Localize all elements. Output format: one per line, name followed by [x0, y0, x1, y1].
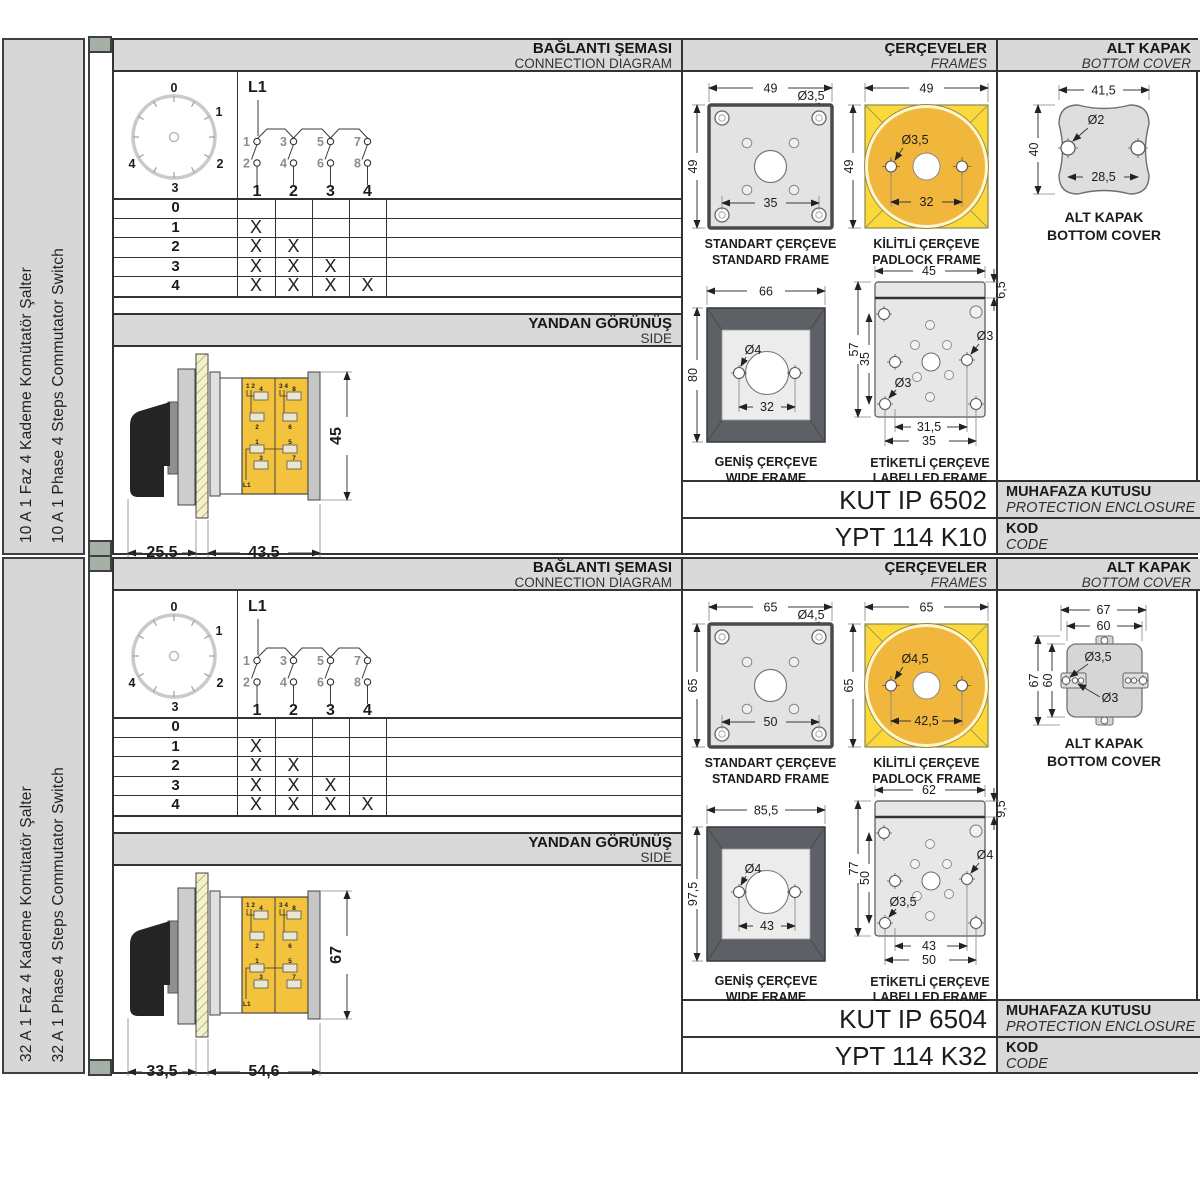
pole-1: 1 — [253, 183, 262, 200]
table-mark: X — [312, 795, 349, 814]
dial-pos-0: 0 — [171, 600, 178, 614]
dim-side-height: 45 — [328, 427, 345, 445]
code-label-en: CODE — [1006, 537, 1200, 553]
l1-feed-label: L1 — [248, 79, 267, 96]
code-label-en: CODE — [1006, 1056, 1200, 1072]
switch-dial-drawing: 0 1 2 3 4 — [114, 72, 237, 198]
dim-pad-hole: Ø4,5 — [901, 652, 928, 666]
product-code-label: KOD CODE — [998, 1038, 1200, 1072]
table-mark: X — [275, 257, 312, 276]
header-cover: ALT KAPAK BOTTOM COVER — [996, 559, 1200, 591]
table-row-label: 4 — [114, 795, 237, 815]
labelled-frame-drawing: 62 — [845, 784, 1023, 1004]
cover-title-en: BOTTOM COVER — [1047, 753, 1161, 769]
standard-frame-title-tr: STANDART ÇERÇEVE — [705, 237, 837, 251]
header-cover-en: BOTTOM COVER — [996, 57, 1191, 71]
side-view-drawing: 1 2 3 4 4 2 1 3 8 6 5 7 L1 45 25,5 43,5 — [114, 347, 674, 557]
table-row-label: 1 — [114, 218, 237, 238]
dim-std-height: 49 — [686, 160, 700, 174]
dial-pos-2: 2 — [217, 676, 224, 690]
header-frames-en: FRAMES — [681, 57, 987, 71]
dim-cover-hole: Ø2 — [1088, 113, 1105, 127]
table-row-label: 0 — [114, 198, 237, 218]
switch-dial-drawing: 0 1 2 3 4 — [114, 591, 237, 717]
dial-pos-4: 4 — [129, 157, 136, 171]
dim-cover-hole-small: Ø3 — [1102, 691, 1119, 705]
dim-wide-hole: Ø4 — [745, 343, 762, 357]
dim-lbl-bottom-inner: 43 — [922, 939, 936, 953]
bottom-cover-drawing: 67 60 67 60 — [1010, 601, 1200, 781]
dim-std-hole: Ø3,5 — [797, 89, 824, 103]
table-mark: X — [275, 776, 312, 795]
terminal-6: 6 — [288, 424, 292, 431]
header-connection-en: CONNECTION DIAGRAM — [114, 576, 672, 590]
wide-frame-drawing: 66 80 Ø4 32 GENİŞ ÇERÇEVE — [692, 278, 852, 490]
dim-std-inner: 35 — [764, 196, 778, 210]
header-connection: BAĞLANTI ŞEMASI CONNECTION DIAGRAM — [114, 559, 681, 591]
table-mark: X — [275, 276, 312, 295]
header-frames-tr: ÇERÇEVELER — [681, 41, 987, 57]
wide-frame-drawing: 85,5 97,5 Ø4 43 GENİŞ ÇERÇEV — [692, 797, 852, 1009]
table-row-label: 2 — [114, 756, 237, 776]
dim-wide-inner: 43 — [760, 919, 774, 933]
labelled-frame-drawing: 45 — [845, 265, 1023, 485]
dim-wide-inner: 32 — [760, 400, 774, 414]
standard-frame-title-en: STANDARD FRAME — [712, 253, 829, 267]
dial-pos-4: 4 — [129, 676, 136, 690]
code-label-tr: KOD — [1006, 1040, 1200, 1056]
dial-pos-1: 1 — [216, 105, 223, 119]
table-row-label: 4 — [114, 276, 237, 296]
contact-2: 2 — [243, 676, 250, 690]
code-label-tr: KOD — [1006, 521, 1200, 537]
switch-knob — [130, 921, 170, 1016]
dim-std-width: 49 — [764, 82, 778, 96]
dim-side-body: 54,6 — [248, 1063, 279, 1080]
product-title-turkish: 10 A 1 Faz 4 Kademe Komütatör Şalter — [18, 267, 36, 543]
enclosure-label-tr: MUHAFAZA KUTUSU — [1006, 484, 1200, 500]
contact-6: 6 — [317, 157, 324, 171]
terminal-feed: L1 — [243, 482, 251, 489]
padlock-frame-drawing: 49 49 Ø3,5 32 KİLİTLİ — [847, 76, 999, 272]
spine-tab-top — [88, 555, 112, 572]
divider-frames — [681, 559, 683, 1072]
header-connection-tr: BAĞLANTI ŞEMASI — [114, 560, 672, 576]
table-row-label: 2 — [114, 237, 237, 257]
dim-lbl-inner-height: 35 — [858, 352, 872, 366]
contact-6: 6 — [317, 676, 324, 690]
panel-hatch — [196, 873, 208, 1037]
l1-feed-label: L1 — [248, 598, 267, 615]
table-mark: X — [237, 276, 275, 295]
cover-title-tr: ALT KAPAK — [1065, 209, 1144, 225]
dim-wide-hole: Ø4 — [745, 862, 762, 876]
dim-cover-hole-big: Ø3,5 — [1084, 650, 1111, 664]
dial-pos-3: 3 — [172, 700, 179, 714]
pole-3: 3 — [326, 702, 335, 719]
terminal-1: 1 — [255, 439, 259, 446]
product-code-label: KOD CODE — [998, 519, 1200, 553]
dim-std-hole: Ø4,5 — [797, 608, 824, 622]
table-mark: X — [275, 795, 312, 814]
dim-pad-inner: 42,5 — [914, 714, 938, 728]
side-view-band: YANDAN GÖRÜNÜŞ SIDE — [114, 313, 681, 347]
header-connection-en: CONNECTION DIAGRAM — [114, 57, 672, 71]
main-panel: BAĞLANTI ŞEMASI CONNECTION DIAGRAM ÇERÇE… — [112, 38, 1198, 555]
contact-5: 5 — [317, 654, 324, 668]
padlock-frame-drawing: 65 65 Ø4,5 42,5 KİLİT — [847, 595, 999, 791]
terminal-8: 8 — [292, 386, 296, 393]
enclosure-label-tr: MUHAFAZA KUTUSU — [1006, 1003, 1200, 1019]
table-row-label: 1 — [114, 737, 237, 757]
mounting-plate — [178, 888, 195, 1024]
product-title-sidebar: 32 A 1 Faz 4 Kademe Komütatör Şalter 32 … — [2, 557, 85, 1074]
dim-std-height: 65 — [686, 679, 700, 693]
standard-frame-drawing: 65 Ø4,5 65 50 STANDART ÇE — [689, 595, 854, 791]
panel-hatch — [196, 354, 208, 518]
dim-lbl-hole-right: Ø3 — [977, 329, 994, 343]
contact-symbols — [252, 138, 371, 185]
header-cover: ALT KAPAK BOTTOM COVER — [996, 40, 1200, 72]
contact-4: 4 — [280, 157, 287, 171]
spine-tab-bottom — [88, 1059, 112, 1076]
dim-pad-height: 49 — [842, 160, 856, 174]
header-frames-en: FRAMES — [681, 576, 987, 590]
terminal-1: 1 — [255, 958, 259, 965]
header-cover-tr: ALT KAPAK — [996, 41, 1191, 57]
catalog-page: { "sections": [ { "sidebar": { "title_tr… — [0, 0, 1200, 1200]
terminal-3: 3 — [259, 974, 263, 981]
header-connection-tr: BAĞLANTI ŞEMASI — [114, 41, 672, 57]
dim-pad-width: 65 — [920, 601, 934, 615]
dim-lbl-width: 45 — [922, 264, 936, 278]
terminal-4: 4 — [259, 386, 263, 393]
dim-pad-hole: Ø3,5 — [901, 133, 928, 147]
contact-7: 7 — [354, 654, 361, 668]
table-row-label: 0 — [114, 717, 237, 737]
dim-lbl-width: 62 — [922, 783, 936, 797]
product-title-english: 10 A 1 Phase 4 Steps Commutator Switch — [50, 248, 68, 543]
dim-lbl-inner-height: 50 — [858, 871, 872, 885]
contact-schematic: L1 1 3 5 7 2 4 — [237, 72, 681, 198]
pole-2: 2 — [289, 702, 298, 719]
standard-frame-title-en: STANDARD FRAME — [712, 772, 829, 786]
end-plate — [308, 372, 320, 500]
switch-knob — [130, 402, 170, 497]
dim-cover-outer-w: 67 — [1097, 603, 1111, 617]
cover-title-en: BOTTOM COVER — [1047, 227, 1161, 243]
dim-lbl-hole-right: Ø4 — [977, 848, 994, 862]
bottom-cover-drawing: 41,5 40 Ø2 28,5 ALT KAPAK BOTTOM COVER — [1010, 82, 1200, 262]
labelled-frame-title-tr: ETİKETLİ ÇERÇEVE — [870, 974, 989, 989]
terminal-7: 7 — [292, 974, 296, 981]
enclosure-code-label: MUHAFAZA KUTUSU PROTECTION ENCLOSURE — [998, 1001, 1200, 1036]
contact-3: 3 — [280, 654, 287, 668]
contact-4: 4 — [280, 676, 287, 690]
header-frames: ÇERÇEVELER FRAMES — [681, 40, 996, 72]
terminal-2: 2 — [255, 943, 259, 950]
product-section: 10 A 1 Faz 4 Kademe Komütatör Şalter 10 … — [0, 38, 1200, 555]
enclosure-code: KUT IP 6502 — [681, 482, 996, 518]
mounting-plate — [178, 369, 195, 505]
enclosure-code-label: MUHAFAZA KUTUSU PROTECTION ENCLOSURE — [998, 482, 1200, 517]
dim-cover-width: 41,5 — [1091, 84, 1115, 98]
spine-strip — [88, 38, 112, 555]
dim-cover-inner-h: 60 — [1041, 674, 1055, 688]
pole-2: 2 — [289, 183, 298, 200]
table-mark: X — [349, 276, 386, 295]
contact-symbols — [252, 657, 371, 704]
table-row-label: 3 — [114, 257, 237, 277]
table-mark: X — [349, 795, 386, 814]
dim-std-width: 65 — [764, 601, 778, 615]
table-mark: X — [312, 276, 349, 295]
dim-cover-inner-w: 60 — [1097, 619, 1111, 633]
wide-frame-title-tr: GENİŞ ÇERÇEVE — [715, 973, 818, 988]
table-mark: X — [312, 257, 349, 276]
dim-lbl-hole-bottom: Ø3 — [895, 376, 912, 390]
dim-lbl-strip: 9,5 — [994, 800, 1008, 817]
contact-8: 8 — [354, 157, 361, 171]
header-connection: BAĞLANTI ŞEMASI CONNECTION DIAGRAM — [114, 40, 681, 72]
dim-wide-height: 97,5 — [686, 882, 700, 906]
table-mark: X — [312, 776, 349, 795]
contact-8: 8 — [354, 676, 361, 690]
dim-wide-width: 66 — [759, 285, 773, 299]
dim-lbl-hole-bottom: Ø3,5 — [889, 895, 916, 909]
terminal-left-top: 1 2 — [246, 383, 255, 390]
contact-2: 2 — [243, 157, 250, 171]
dim-cover-span: 28,5 — [1091, 170, 1115, 184]
padlock-frame-title-tr: KİLİTLİ ÇERÇEVE — [873, 755, 979, 770]
side-view-band: YANDAN GÖRÜNÜŞ SIDE — [114, 832, 681, 866]
divider-frames — [681, 40, 683, 553]
dim-lbl-bottom-inner: 31,5 — [917, 420, 941, 434]
terminal-feed: L1 — [243, 1001, 251, 1008]
terminal-right-top: 3 4 — [279, 902, 288, 909]
dim-pad-width: 49 — [920, 82, 934, 96]
pole-4: 4 — [363, 702, 372, 719]
spine-strip — [88, 557, 112, 1074]
contact-7: 7 — [354, 135, 361, 149]
terminal-3: 3 — [259, 455, 263, 462]
pole-4: 4 — [363, 183, 372, 200]
pole-1: 1 — [253, 702, 262, 719]
product-title-english: 32 A 1 Phase 4 Steps Commutator Switch — [50, 767, 68, 1062]
product-code: YPT 114 K32 — [681, 1038, 996, 1074]
dim-lbl-strip: 6,5 — [994, 281, 1008, 298]
table-mark: X — [275, 756, 312, 775]
spine-tab-top — [88, 36, 112, 53]
terminal-5: 5 — [288, 439, 292, 446]
product-section: 32 A 1 Faz 4 Kademe Komütatör Şalter 32 … — [0, 557, 1200, 1074]
table-mark: X — [237, 756, 275, 775]
terminal-right-top: 3 4 — [279, 383, 288, 390]
contact-1: 1 — [243, 654, 250, 668]
padlock-frame-title-tr: KİLİTLİ ÇERÇEVE — [873, 236, 979, 251]
dim-wide-width: 85,5 — [754, 804, 778, 818]
table-mark: X — [237, 257, 275, 276]
header-cover-tr: ALT KAPAK — [996, 560, 1191, 576]
dim-side-front: 33,5 — [146, 1063, 177, 1080]
table-mark: X — [237, 795, 275, 814]
dim-std-inner: 50 — [764, 715, 778, 729]
header-frames-tr: ÇERÇEVELER — [681, 560, 987, 576]
product-code: YPT 114 K10 — [681, 519, 996, 555]
cover-title-tr: ALT KAPAK — [1065, 735, 1144, 751]
dim-lbl-bottom-outer: 50 — [922, 953, 936, 967]
side-view-label-en: SIDE — [114, 851, 672, 865]
dial-pos-1: 1 — [216, 624, 223, 638]
table-row-label: 3 — [114, 776, 237, 796]
terminal-6: 6 — [288, 943, 292, 950]
enclosure-label-en: PROTECTION ENCLOSURE — [1006, 500, 1200, 516]
header-frames: ÇERÇEVELER FRAMES — [681, 559, 996, 591]
enclosure-label-en: PROTECTION ENCLOSURE — [1006, 1019, 1200, 1035]
side-view-label-tr: YANDAN GÖRÜNÜŞ — [114, 316, 672, 332]
terminal-7: 7 — [292, 455, 296, 462]
side-view-drawing: 1 2 3 4 4 2 1 3 8 6 5 7 L1 67 33,5 54,6 — [114, 866, 674, 1076]
contact-5: 5 — [317, 135, 324, 149]
terminal-4: 4 — [259, 905, 263, 912]
dial-pos-2: 2 — [217, 157, 224, 171]
dim-pad-inner: 32 — [920, 195, 934, 209]
side-view-label-tr: YANDAN GÖRÜNÜŞ — [114, 835, 672, 851]
standard-frame-drawing: 49 Ø3,5 49 35 STANDART ÇE — [689, 76, 854, 272]
table-mark: X — [237, 218, 275, 237]
labelled-frame-title-tr: ETİKETLİ ÇERÇEVE — [870, 455, 989, 470]
dim-cover-outer-h: 67 — [1027, 674, 1041, 688]
table-mark: X — [237, 237, 275, 256]
contact-schematic: L1 1 3 5 7 2 4 — [237, 591, 681, 717]
enclosure-code: KUT IP 6504 — [681, 1001, 996, 1037]
terminal-5: 5 — [288, 958, 292, 965]
pole-3: 3 — [326, 183, 335, 200]
dim-lbl-bottom-outer: 35 — [922, 434, 936, 448]
dim-cover-height: 40 — [1027, 143, 1041, 157]
end-plate — [308, 891, 320, 1019]
dial-pos-0: 0 — [171, 81, 178, 95]
terminal-8: 8 — [292, 905, 296, 912]
terminal-2: 2 — [255, 424, 259, 431]
table-mark: X — [237, 776, 275, 795]
standard-frame-title-tr: STANDART ÇERÇEVE — [705, 756, 837, 770]
dim-side-height: 67 — [328, 946, 345, 964]
side-view-label-en: SIDE — [114, 332, 672, 346]
contact-3: 3 — [280, 135, 287, 149]
terminal-left-top: 1 2 — [246, 902, 255, 909]
product-title-turkish: 32 A 1 Faz 4 Kademe Komütatör Şalter — [18, 786, 36, 1062]
header-cover-en: BOTTOM COVER — [996, 576, 1191, 590]
dial-pos-3: 3 — [172, 181, 179, 195]
wide-frame-title-tr: GENİŞ ÇERÇEVE — [715, 454, 818, 469]
main-panel: BAĞLANTI ŞEMASI CONNECTION DIAGRAM ÇERÇE… — [112, 557, 1198, 1074]
dim-pad-height: 65 — [842, 679, 856, 693]
table-mark: X — [237, 737, 275, 756]
contact-1: 1 — [243, 135, 250, 149]
dim-wide-height: 80 — [686, 368, 700, 382]
table-mark: X — [275, 237, 312, 256]
product-title-sidebar: 10 A 1 Faz 4 Kademe Komütatör Şalter 10 … — [2, 38, 85, 555]
